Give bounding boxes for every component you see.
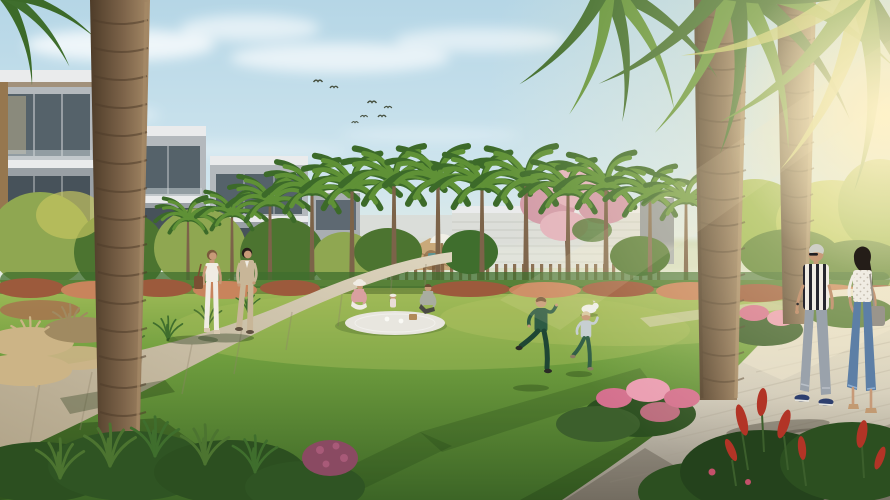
sunglasses [809,253,818,256]
shoe [235,327,243,331]
sneaker-sole [819,404,833,405]
heeled-shoe [848,404,859,409]
hand [528,325,531,328]
cloud [180,15,320,41]
shoe [544,369,552,373]
handbag [870,306,885,326]
tree-canopy [442,230,498,274]
purple-flower [323,461,330,468]
toddler [390,294,397,308]
park-scene [0,0,890,500]
watch [796,303,799,306]
face [209,252,217,260]
cast-shadow [198,334,254,343]
roof-fascia [210,156,308,165]
blouse-dots [853,270,872,302]
sneaker-sole [795,400,809,401]
shoe [516,346,523,350]
pink-flower-dot [709,469,716,476]
picnic-blanket [345,311,445,335]
cast-shadow [513,385,549,392]
roof-fascia [0,70,96,82]
torso [421,291,435,305]
purple-flower-shrub [302,440,358,476]
sun-hat [353,281,366,286]
shoe [204,328,210,332]
picnic-basket [409,314,417,320]
shoe [246,330,254,334]
hand [237,283,240,286]
torso [206,263,219,282]
mother-with-sun-hat [351,279,367,310]
shoulder-bag [194,276,203,289]
plate [385,317,390,322]
torso [353,289,366,302]
render-canvas [0,0,890,500]
purple-flower [333,443,340,450]
body [390,299,396,308]
balcony-slab [0,160,96,168]
purple-flower [316,446,324,454]
soffit [0,82,96,87]
hand [795,310,799,314]
balcony-glass-rail [4,150,92,160]
plate [399,319,404,324]
glass-reflection [8,96,26,154]
pink-flower-dot [745,479,751,485]
face [244,251,252,259]
red-shrub [430,281,510,297]
baby-hat [390,294,397,297]
shoe [214,330,220,334]
purple-flower [340,454,348,462]
heeled-shoe [865,408,877,413]
striped-shirt [803,264,829,310]
